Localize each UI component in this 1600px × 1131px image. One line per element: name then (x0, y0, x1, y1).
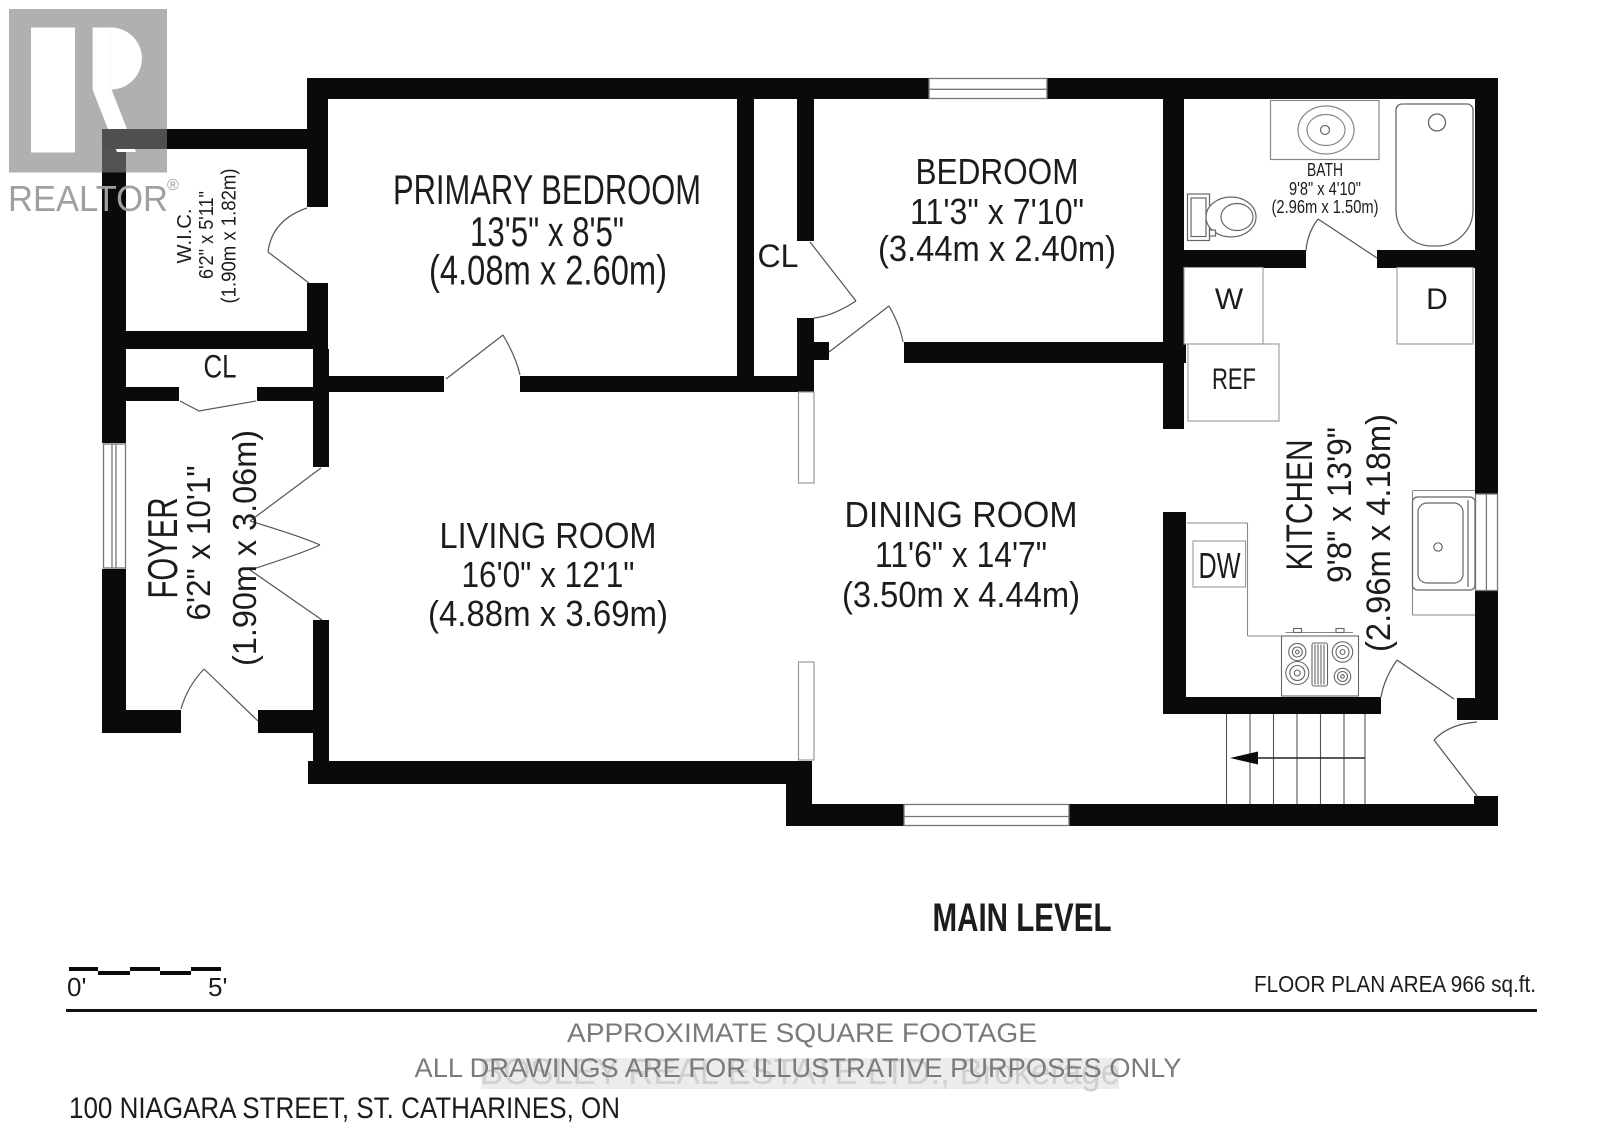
svg-text:PRIMARY BEDROOM: PRIMARY BEDROOM (393, 166, 701, 213)
svg-text:6'2" x 10'1": 6'2" x 10'1" (180, 466, 217, 621)
svg-text:11'6" x 14'7": 11'6" x 14'7" (875, 534, 1047, 575)
svg-text:BATH: BATH (1307, 160, 1343, 180)
svg-text:DINING ROOM: DINING ROOM (845, 494, 1078, 535)
svg-text:KITCHEN: KITCHEN (1279, 440, 1320, 571)
svg-text:6'2" x 5'11": 6'2" x 5'11" (196, 191, 218, 279)
svg-text:100 NIAGARA STREET, ST. CATHAR: 100 NIAGARA STREET, ST. CATHARINES, ON (69, 1092, 620, 1125)
svg-text:(3.50m x 4.44m): (3.50m x 4.44m) (842, 574, 1080, 615)
svg-text:0': 0' (67, 972, 86, 1002)
svg-text:MAIN LEVEL: MAIN LEVEL (933, 896, 1112, 940)
svg-text:(2.96m x 1.50m): (2.96m x 1.50m) (1272, 197, 1379, 217)
svg-text:9'8" x 4'10": 9'8" x 4'10" (1289, 179, 1361, 199)
svg-text:9'8" x 13'9": 9'8" x 13'9" (1321, 427, 1359, 583)
svg-text:(1.90m x 3.06m): (1.90m x 3.06m) (226, 430, 263, 666)
svg-text:CL: CL (204, 349, 237, 385)
svg-text:ALL DRAWINGS ARE FOR ILLUSTRAT: ALL DRAWINGS ARE FOR ILLUSTRATIVE PURPOS… (415, 1053, 1182, 1083)
svg-text:(3.44m x 2.40m): (3.44m x 2.40m) (878, 228, 1116, 269)
svg-text:16'0" x 12'1": 16'0" x 12'1" (462, 554, 635, 595)
svg-text:FLOOR PLAN AREA 966 sq.ft.: FLOOR PLAN AREA 966 sq.ft. (1254, 971, 1536, 997)
svg-text:(2.96m x 4.18m): (2.96m x 4.18m) (1360, 414, 1398, 652)
svg-text:5': 5' (208, 972, 227, 1002)
svg-text:®: ® (167, 177, 179, 194)
svg-text:(4.88m x 3.69m): (4.88m x 3.69m) (428, 593, 668, 634)
svg-text:LIVING ROOM: LIVING ROOM (440, 515, 657, 556)
svg-text:11'3" x 7'10": 11'3" x 7'10" (910, 191, 1084, 232)
svg-text:REF: REF (1212, 363, 1256, 396)
svg-text:(1.90m x 1.82m): (1.90m x 1.82m) (219, 169, 241, 304)
svg-text:(4.08m x 2.60m): (4.08m x 2.60m) (429, 247, 667, 294)
svg-text:DW: DW (1199, 545, 1241, 586)
svg-text:FOYER: FOYER (139, 498, 186, 599)
svg-text:W.I.C.: W.I.C. (174, 209, 196, 264)
svg-text:CL: CL (758, 238, 799, 274)
svg-text:REALTOR: REALTOR (8, 178, 168, 219)
svg-text:D: D (1426, 283, 1448, 316)
svg-text:BEDROOM: BEDROOM (916, 151, 1079, 192)
svg-text:W: W (1215, 283, 1244, 316)
svg-text:APPROXIMATE SQUARE FOOTAGE: APPROXIMATE SQUARE FOOTAGE (567, 1018, 1037, 1048)
